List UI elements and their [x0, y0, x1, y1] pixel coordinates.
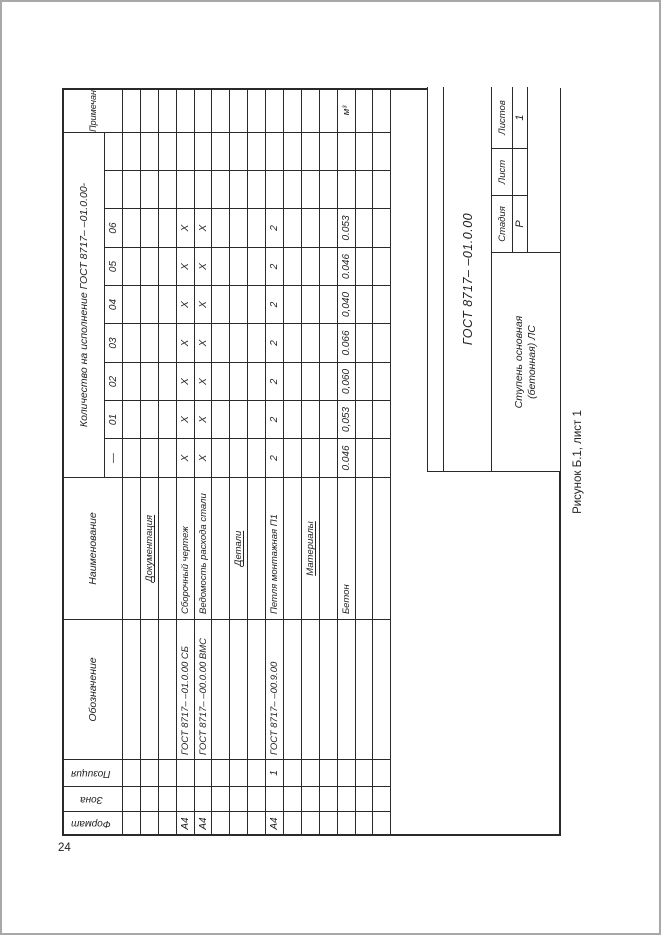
name-cell: Ведомость расхода стали	[194, 478, 212, 620]
quantity-cell	[140, 132, 158, 170]
quantity-cell	[248, 209, 266, 248]
name-cell	[212, 478, 230, 620]
quantity-cell	[158, 171, 176, 209]
execution-col-header: 05	[105, 248, 123, 286]
quantity-cell	[212, 363, 230, 401]
quantity-cell	[284, 209, 302, 248]
quantity-cell	[319, 324, 337, 363]
quantity-cell	[319, 132, 337, 170]
designation-cell	[123, 620, 141, 760]
quantity-cell	[284, 286, 302, 324]
format-column-header: Формат	[63, 812, 123, 836]
quantity-cell: X	[176, 439, 194, 478]
name-cell	[355, 478, 373, 620]
zone-cell	[212, 787, 230, 812]
quantity-cell: X	[194, 401, 212, 439]
execution-col-header: 03	[105, 324, 123, 363]
quantity-cell	[158, 286, 176, 324]
quantity-cell	[301, 286, 319, 324]
position-cell	[337, 760, 355, 787]
note-cell	[176, 88, 194, 132]
quantity-cell	[212, 286, 230, 324]
name-cell: Бетон	[337, 478, 355, 620]
quantity-cell	[194, 132, 212, 170]
format-cell	[230, 812, 248, 836]
quantity-cell	[319, 439, 337, 478]
execution-col-header: 02	[105, 363, 123, 401]
spec-table-row	[373, 88, 391, 835]
scanned-gost-page: { "page": { "number": "24", "caption": "…	[0, 0, 661, 935]
quantity-cell	[355, 171, 373, 209]
quantity-cell	[140, 286, 158, 324]
quantity-cell: X	[194, 248, 212, 286]
figure-caption: Рисунок Б.1, лист 1	[572, 88, 584, 836]
quantity-cell	[230, 401, 248, 439]
quantity-cell	[123, 286, 141, 324]
note-cell	[158, 88, 176, 132]
stage-header: Стадия	[492, 195, 513, 252]
quantity-cell	[301, 132, 319, 170]
note-cell	[301, 88, 319, 132]
quantity-cell	[373, 132, 391, 170]
designation-cell: ГОСТ 8717– –01.0.00 СБ	[176, 620, 194, 760]
specification-table: Формат Зона Позиция Обозначение Наименов…	[62, 88, 391, 836]
quantity-cell	[266, 171, 284, 209]
quantity-cell	[284, 363, 302, 401]
quantity-cell: 2	[266, 401, 284, 439]
quantity-cell	[373, 209, 391, 248]
quantity-cell	[123, 171, 141, 209]
sheets-header: Листов	[492, 87, 513, 148]
quantity-cell	[248, 401, 266, 439]
designation-cell: ГОСТ 8717– –00.0.00 ВМС	[194, 620, 212, 760]
quantity-cell: 0.046	[337, 439, 355, 478]
quantity-cell: X	[194, 286, 212, 324]
quantity-cell	[301, 439, 319, 478]
quantity-cell	[355, 248, 373, 286]
spec-table-row	[123, 88, 141, 835]
quantity-cell	[337, 132, 355, 170]
quantity-cell	[319, 363, 337, 401]
quantity-cell	[373, 439, 391, 478]
note-cell	[373, 88, 391, 132]
quantity-cell: X	[194, 324, 212, 363]
spec-table-row: А4ГОСТ 8717– –00.0.00 ВМСВедомость расхо…	[194, 88, 212, 835]
execution-col-header	[105, 171, 123, 209]
designation-column-header: Обозначение	[63, 620, 123, 760]
quantity-cell	[140, 171, 158, 209]
name-cell: Документация	[140, 478, 158, 620]
format-cell	[248, 812, 266, 836]
designation-cell	[284, 620, 302, 760]
quantity-cell	[194, 171, 212, 209]
quantity-cell	[123, 248, 141, 286]
quantity-cell	[373, 324, 391, 363]
quantity-cell: 0,060	[337, 363, 355, 401]
designation-cell	[319, 620, 337, 760]
name-cell	[248, 478, 266, 620]
spec-table-row: А41ГОСТ 8717– –00.9.00Петля монтажная П1…	[266, 88, 284, 835]
name-cell: Детали	[230, 478, 248, 620]
quantity-cell	[319, 248, 337, 286]
quantity-cell	[140, 363, 158, 401]
quantity-cell: X	[194, 363, 212, 401]
quantity-cell	[212, 132, 230, 170]
spec-table-row: А4ГОСТ 8717– –01.0.00 СБСборочный чертеж…	[176, 88, 194, 835]
quantity-cell	[248, 324, 266, 363]
header-row-main: Формат Зона Позиция Обозначение Наименов…	[63, 88, 105, 835]
quantity-cell	[284, 171, 302, 209]
designation-cell	[140, 620, 158, 760]
designation-cell	[355, 620, 373, 760]
sheets-value: 1	[513, 87, 528, 148]
zone-cell	[337, 787, 355, 812]
quantity-cell: X	[194, 439, 212, 478]
quantity-cell	[301, 324, 319, 363]
name-cell	[158, 478, 176, 620]
designation-cell: ГОСТ 8717– –00.9.00	[266, 620, 284, 760]
quantity-cell	[212, 401, 230, 439]
quantity-cell	[284, 439, 302, 478]
note-column-header: Примечание	[63, 88, 123, 132]
zone-cell	[301, 787, 319, 812]
quantity-cell	[230, 286, 248, 324]
format-cell	[140, 812, 158, 836]
format-cell	[158, 812, 176, 836]
position-cell	[140, 760, 158, 787]
quantity-cell	[337, 171, 355, 209]
name-cell	[319, 478, 337, 620]
note-cell	[140, 88, 158, 132]
page-number: 24	[58, 842, 71, 854]
quantity-cell: 2	[266, 363, 284, 401]
name-column-header: Наименование	[63, 478, 123, 620]
quantity-cell	[212, 439, 230, 478]
spec-table-row	[158, 88, 176, 835]
quantity-cell	[212, 171, 230, 209]
position-cell	[248, 760, 266, 787]
quantity-cell	[230, 324, 248, 363]
spec-table-row	[212, 88, 230, 835]
title-block-empty-strip	[428, 87, 444, 471]
quantity-cell: X	[176, 209, 194, 248]
position-cell	[355, 760, 373, 787]
quantity-cell	[248, 132, 266, 170]
stage-sheet-grid: Стадия Лист Листов Р 1	[492, 87, 560, 252]
position-column-header: Позиция	[63, 760, 123, 787]
note-cell	[284, 88, 302, 132]
quantity-cell: 0.066	[337, 324, 355, 363]
note-cell	[355, 88, 373, 132]
quantity-group-header: Количество на исполнение ГОСТ 8717– –01.…	[63, 132, 105, 477]
stage-value: Р	[513, 195, 528, 252]
format-cell	[337, 812, 355, 836]
quantity-cell	[284, 324, 302, 363]
execution-col-header: —	[105, 439, 123, 478]
quantity-cell	[355, 209, 373, 248]
quantity-cell	[140, 401, 158, 439]
name-cell	[123, 478, 141, 620]
quantity-cell	[284, 248, 302, 286]
note-cell: м³	[337, 88, 355, 132]
format-label: Формат	[71, 819, 111, 829]
organization-cell	[528, 87, 560, 252]
quantity-cell	[301, 401, 319, 439]
quantity-cell	[301, 363, 319, 401]
quantity-cell	[248, 363, 266, 401]
quantity-cell	[319, 401, 337, 439]
zone-cell	[230, 787, 248, 812]
zone-cell	[319, 787, 337, 812]
quantity-cell: 2	[266, 248, 284, 286]
quantity-cell	[212, 209, 230, 248]
spec-table-row: Бетон0.0460,0530,0600.0660,0400.0460.053…	[337, 88, 355, 835]
quantity-cell	[123, 363, 141, 401]
quantity-cell	[230, 439, 248, 478]
title-block-lower: Ступень основная (бетонная) ЛС Стадия Ли…	[492, 87, 560, 471]
name-cell: Сборочный чертеж	[176, 478, 194, 620]
quantity-cell	[230, 132, 248, 170]
quantity-cell: X	[176, 248, 194, 286]
quantity-cell	[230, 209, 248, 248]
position-cell	[230, 760, 248, 787]
quantity-cell	[355, 363, 373, 401]
quantity-cell: X	[176, 324, 194, 363]
position-cell	[194, 760, 212, 787]
quantity-cell	[140, 248, 158, 286]
quantity-cell	[373, 401, 391, 439]
quantity-cell	[212, 324, 230, 363]
format-cell	[319, 812, 337, 836]
quantity-cell	[158, 324, 176, 363]
quantity-cell	[301, 248, 319, 286]
quantity-cell	[123, 324, 141, 363]
note-cell	[248, 88, 266, 132]
spec-table-row	[355, 88, 373, 835]
note-cell	[230, 88, 248, 132]
sheet-header: Лист	[492, 148, 513, 195]
quantity-cell	[266, 132, 284, 170]
note-cell	[319, 88, 337, 132]
quantity-cell	[301, 171, 319, 209]
quantity-cell	[230, 248, 248, 286]
quantity-cell	[123, 401, 141, 439]
quantity-cell	[158, 363, 176, 401]
designation-cell	[230, 620, 248, 760]
quantity-cell	[355, 439, 373, 478]
position-cell	[284, 760, 302, 787]
quantity-cell	[140, 209, 158, 248]
quantity-cell	[158, 248, 176, 286]
name-cell: Петля монтажная П1	[266, 478, 284, 620]
quantity-cell	[248, 286, 266, 324]
position-cell	[176, 760, 194, 787]
quantity-cell	[123, 209, 141, 248]
spec-table-row	[284, 88, 302, 835]
zone-cell	[355, 787, 373, 812]
designation-cell	[301, 620, 319, 760]
position-cell	[212, 760, 230, 787]
sheet-value	[513, 148, 528, 195]
quantity-cell	[248, 248, 266, 286]
designation-cell	[248, 620, 266, 760]
execution-col-header: 04	[105, 286, 123, 324]
name-cell	[284, 478, 302, 620]
execution-col-header: 01	[105, 401, 123, 439]
quantity-cell	[140, 324, 158, 363]
format-cell: А4	[194, 812, 212, 836]
zone-cell	[158, 787, 176, 812]
note-cell	[212, 88, 230, 132]
quantity-cell	[373, 286, 391, 324]
quantity-cell: X	[194, 209, 212, 248]
figure-b1-rotated: Формат Зона Позиция Обозначение Наименов…	[62, 88, 593, 836]
product-name-cell: Ступень основная (бетонная) ЛС	[492, 252, 560, 471]
zone-cell	[284, 787, 302, 812]
quantity-cell: X	[176, 286, 194, 324]
quantity-cell: 0.053	[337, 209, 355, 248]
quantity-cell: 2	[266, 324, 284, 363]
quantity-cell	[319, 286, 337, 324]
position-cell	[373, 760, 391, 787]
zone-cell	[373, 787, 391, 812]
quantity-cell	[373, 363, 391, 401]
quantity-cell	[284, 132, 302, 170]
format-cell	[373, 812, 391, 836]
quantity-cell	[158, 439, 176, 478]
product-name-line2: (бетонная) ЛС	[526, 325, 539, 399]
quantity-cell	[230, 363, 248, 401]
quantity-cell	[248, 171, 266, 209]
name-cell: Материалы	[301, 478, 319, 620]
quantity-cell	[373, 248, 391, 286]
product-name-line1: Ступень основная	[513, 316, 526, 409]
quantity-cell	[212, 248, 230, 286]
quantity-cell	[123, 132, 141, 170]
quantity-cell	[319, 209, 337, 248]
designation-cell	[373, 620, 391, 760]
spec-table-row: Документация	[140, 88, 158, 835]
format-cell	[212, 812, 230, 836]
quantity-cell	[355, 132, 373, 170]
zone-column-header: Зона	[63, 787, 123, 812]
format-cell	[284, 812, 302, 836]
zone-cell	[176, 787, 194, 812]
quantity-cell	[355, 324, 373, 363]
note-cell	[194, 88, 212, 132]
quantity-cell: 2	[266, 209, 284, 248]
format-cell	[123, 812, 141, 836]
spec-table-row: Детали	[230, 88, 248, 835]
title-block: ГОСТ 8717– –01.0.00 Ступень основная (бе…	[427, 87, 560, 472]
note-cell	[266, 88, 284, 132]
zone-cell	[248, 787, 266, 812]
quantity-cell	[140, 439, 158, 478]
quantity-cell	[301, 209, 319, 248]
quantity-cell	[284, 401, 302, 439]
document-designation: ГОСТ 8717– –01.0.00	[444, 87, 492, 471]
quantity-cell	[158, 401, 176, 439]
position-cell: 1	[266, 760, 284, 787]
quantity-cell	[355, 401, 373, 439]
designation-cell	[337, 620, 355, 760]
spec-table-row	[319, 88, 337, 835]
position-cell	[319, 760, 337, 787]
format-cell: А4	[266, 812, 284, 836]
quantity-cell	[176, 132, 194, 170]
quantity-cell	[319, 171, 337, 209]
note-cell	[123, 88, 141, 132]
quantity-cell: X	[176, 363, 194, 401]
spec-table-row	[248, 88, 266, 835]
quantity-cell: X	[176, 401, 194, 439]
quantity-cell	[158, 132, 176, 170]
zone-label: Зона	[80, 794, 103, 804]
execution-col-header	[105, 132, 123, 170]
name-cell	[373, 478, 391, 620]
quantity-cell	[373, 171, 391, 209]
format-cell	[301, 812, 319, 836]
quantity-cell: 0.046	[337, 248, 355, 286]
quantity-cell: 0,053	[337, 401, 355, 439]
position-cell	[158, 760, 176, 787]
quantity-cell: 2	[266, 439, 284, 478]
position-label: Позиция	[71, 768, 111, 778]
quantity-cell	[158, 209, 176, 248]
designation-cell	[158, 620, 176, 760]
specification-sheet: Формат Зона Позиция Обозначение Наименов…	[62, 88, 561, 836]
zone-cell	[123, 787, 141, 812]
quantity-cell: 2	[266, 286, 284, 324]
zone-cell	[194, 787, 212, 812]
quantity-cell	[123, 439, 141, 478]
quantity-cell	[176, 171, 194, 209]
quantity-cell: 0,040	[337, 286, 355, 324]
quantity-cell	[248, 439, 266, 478]
designation-cell	[212, 620, 230, 760]
spec-table-body: ДокументацияА4ГОСТ 8717– –01.0.00 СБСбор…	[123, 88, 391, 835]
format-cell	[355, 812, 373, 836]
quantity-cell	[230, 171, 248, 209]
position-cell	[301, 760, 319, 787]
zone-cell	[266, 787, 284, 812]
execution-col-header: 06	[105, 209, 123, 248]
quantity-cell	[355, 286, 373, 324]
zone-cell	[140, 787, 158, 812]
position-cell	[123, 760, 141, 787]
spec-table-row: Материалы	[301, 88, 319, 835]
format-cell: А4	[176, 812, 194, 836]
